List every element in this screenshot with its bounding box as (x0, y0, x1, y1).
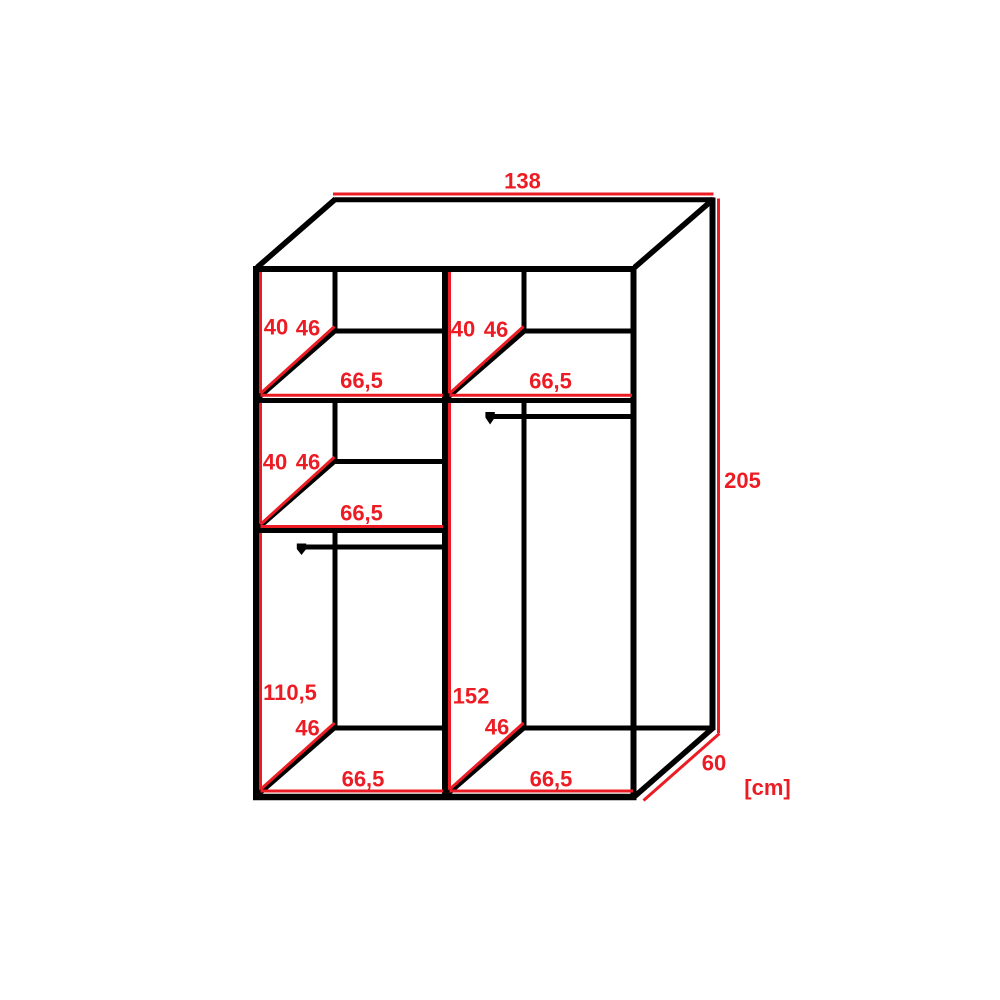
svg-text:66,5: 66,5 (530, 767, 573, 792)
svg-text:46: 46 (485, 715, 509, 740)
svg-text:110,5: 110,5 (263, 680, 317, 705)
svg-text:46: 46 (296, 450, 320, 475)
svg-text:60: 60 (702, 751, 726, 776)
svg-text:46: 46 (295, 716, 319, 741)
svg-text:138: 138 (504, 169, 541, 194)
svg-text:[cm]: [cm] (744, 775, 790, 800)
svg-text:40: 40 (264, 315, 288, 340)
svg-text:152: 152 (453, 684, 490, 709)
svg-text:66,5: 66,5 (529, 369, 572, 394)
svg-text:46: 46 (296, 316, 320, 341)
svg-text:205: 205 (724, 468, 761, 493)
svg-text:40: 40 (263, 450, 287, 475)
svg-text:40: 40 (451, 317, 475, 342)
svg-text:66,5: 66,5 (340, 368, 383, 393)
svg-text:66,5: 66,5 (342, 767, 385, 792)
svg-text:46: 46 (484, 317, 508, 342)
svg-text:66,5: 66,5 (340, 501, 383, 526)
